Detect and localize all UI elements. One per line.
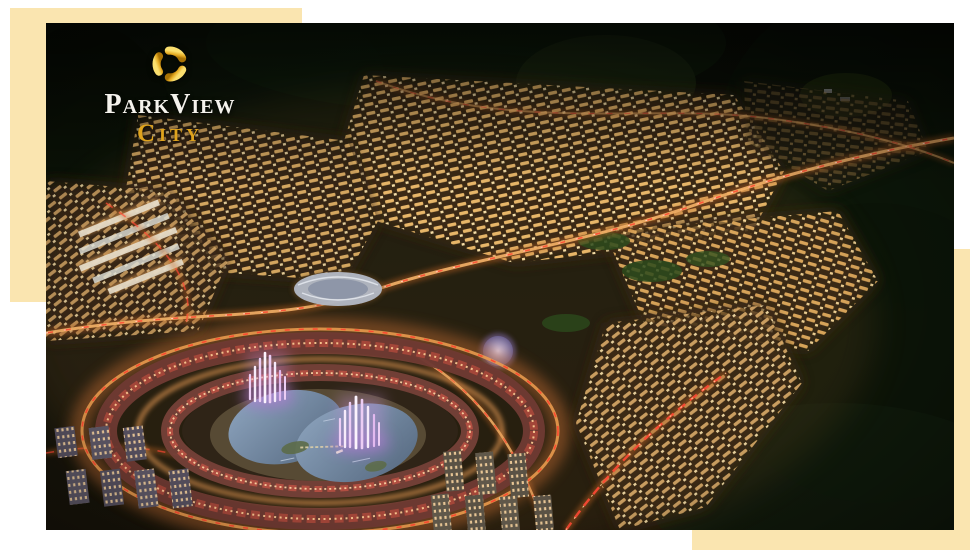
aerial-render: ParkView City	[46, 23, 954, 530]
page: ParkView City	[0, 0, 970, 550]
swirl-icon	[147, 41, 193, 87]
brand-name: ParkView	[105, 91, 236, 119]
brand-logo: ParkView City	[90, 41, 250, 146]
brand-city: City	[137, 121, 203, 146]
